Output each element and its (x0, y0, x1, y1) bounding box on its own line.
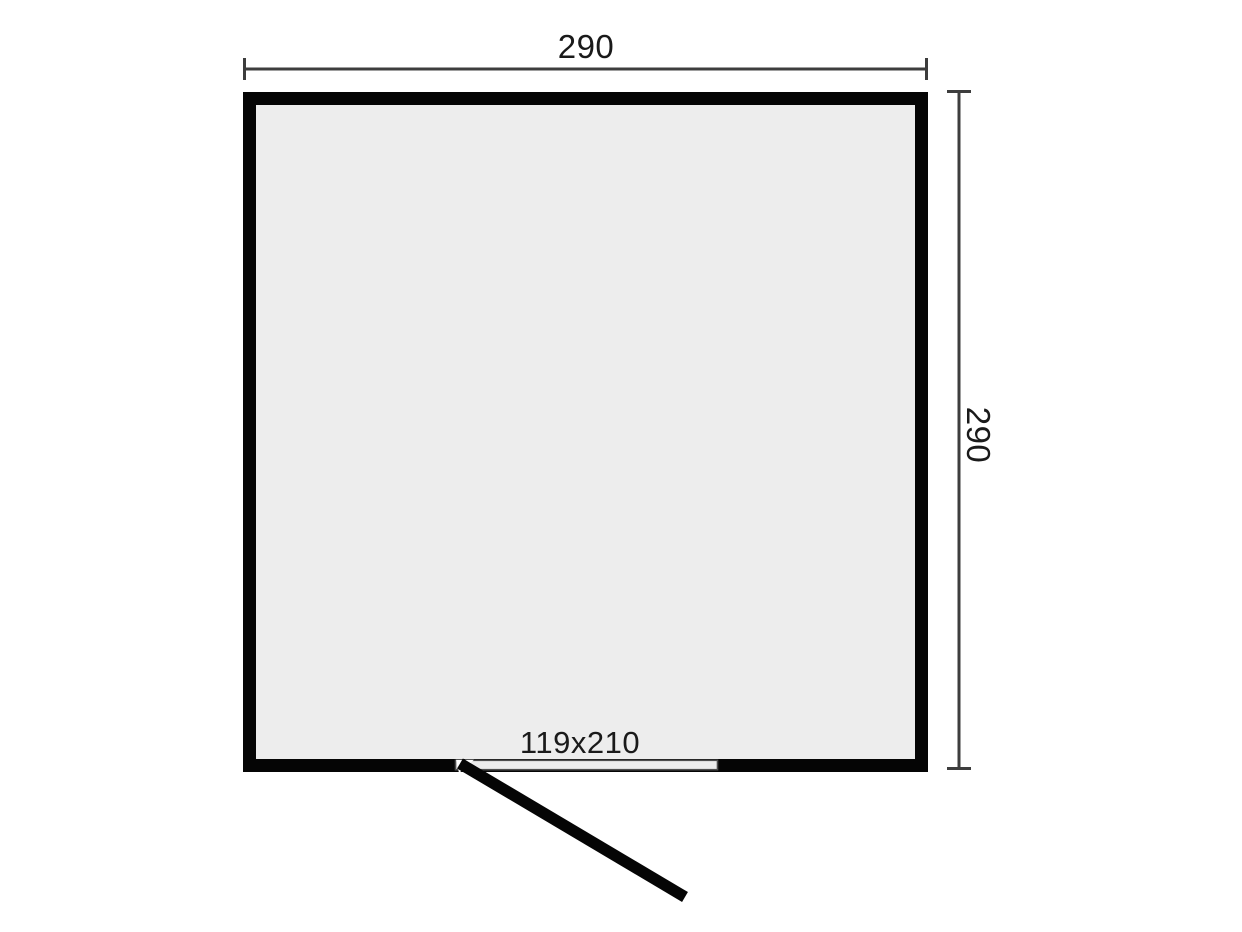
door-size-label: 119x210 (520, 725, 640, 760)
door-opening (456, 760, 718, 769)
height-dimension-label: 290 (960, 407, 997, 464)
room-interior-floor (256, 105, 915, 759)
width-dimension-label: 290 (558, 28, 615, 65)
floor-plan-canvas: 290 290 119x210 (0, 0, 1242, 932)
floor-plan-diagram: 290 290 119x210 (0, 0, 1242, 932)
